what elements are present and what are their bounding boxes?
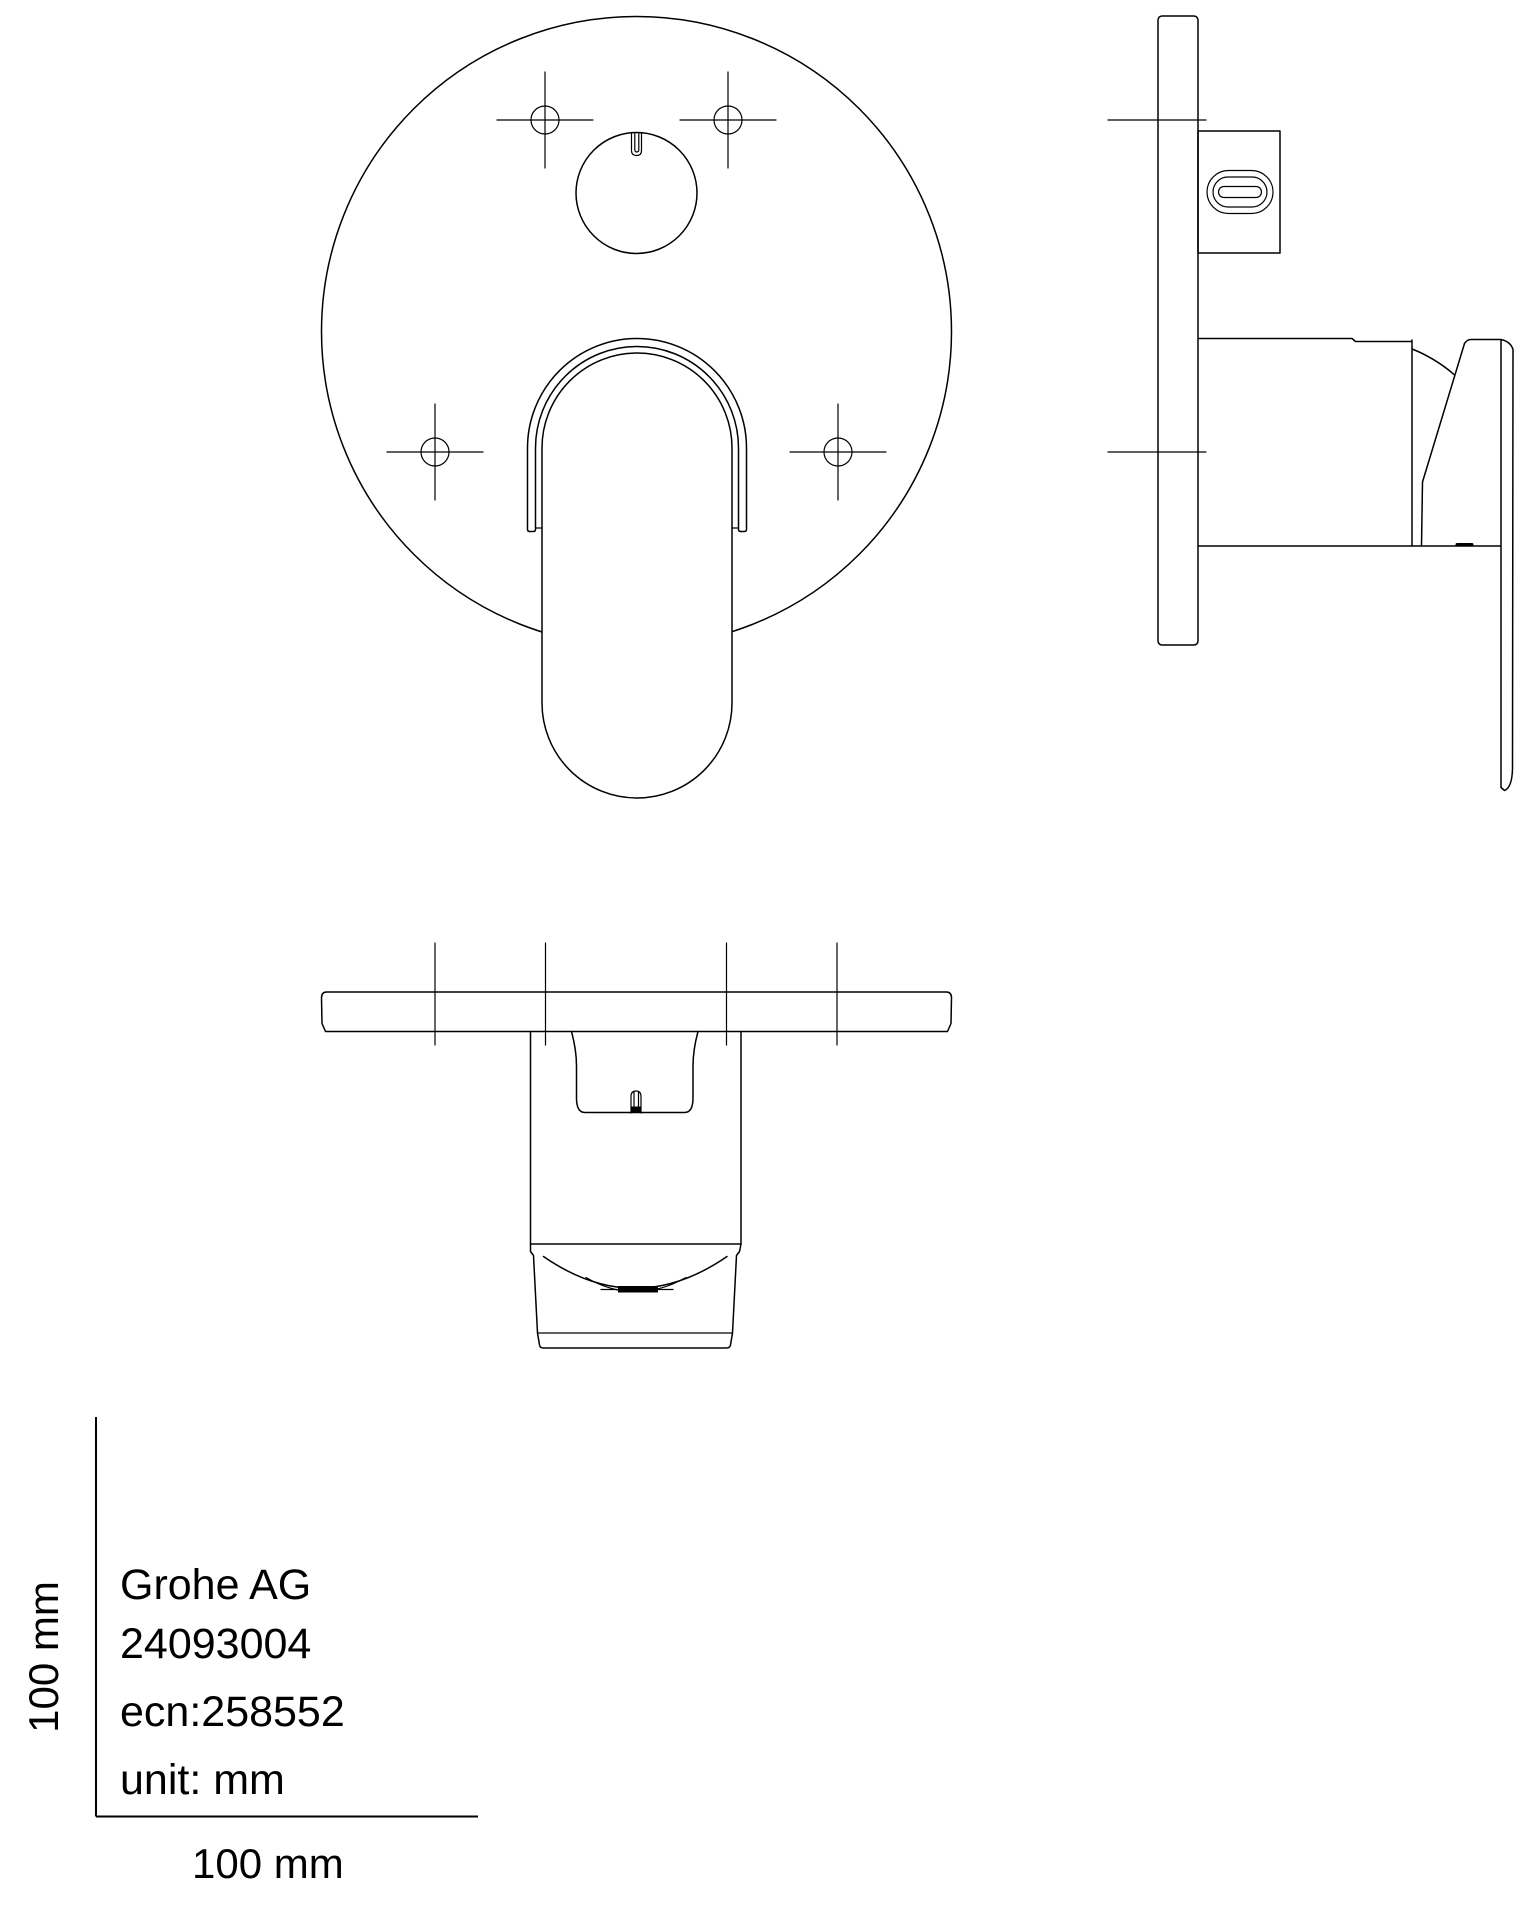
side-view [1108, 16, 1513, 791]
handle-hub-top-edge [1465, 340, 1502, 344]
grip-underside-arc-outer [544, 1257, 728, 1289]
unit-label: unit: mm [120, 1756, 285, 1804]
hub-neck-curve [1412, 349, 1454, 375]
manufacturer-label: Grohe AG [120, 1561, 311, 1609]
title-block: Grohe AG 24093004 ecn:258552 unit: mm [120, 1561, 345, 1804]
wall-plate-edge [1158, 16, 1198, 645]
diverter-pin-bottom-inner [634, 1092, 639, 1106]
lever-handle-grip [542, 353, 732, 798]
lever-blade [1501, 340, 1513, 791]
bottom-view [322, 943, 952, 1348]
screw-hole-crosshair-top-right [680, 72, 776, 168]
front-view [322, 17, 952, 799]
screw-hole-crosshair-bottom-right [790, 404, 886, 500]
valve-body-outline [1198, 339, 1501, 547]
technical-drawing: 100 mm 100 mm Grohe AG 24093004 ecn:2585… [0, 0, 1528, 1920]
handle-hub-leading-edge [1422, 344, 1465, 547]
screw-hole-crosshair-bottom-left [387, 404, 483, 500]
diverter-knob-cup [572, 1032, 699, 1113]
product-number-label: 24093004 [120, 1620, 311, 1668]
diverter-knob-circle [576, 133, 697, 254]
diverter-slot-inner [1219, 187, 1262, 198]
diverter-slot-middle [1213, 177, 1267, 207]
diverter-housing [1198, 131, 1280, 253]
pivot-slot-fill [618, 1286, 658, 1293]
screw-hole-crosshair-top-left [497, 72, 593, 168]
diverter-indicator-pin-inner [635, 133, 639, 152]
ecn-label: ecn:258552 [120, 1688, 345, 1736]
plate-edge-bar [322, 992, 952, 1032]
handle-grip-outline [531, 1032, 742, 1245]
drawing-page: 100 mm 100 mm Grohe AG 24093004 ecn:2585… [0, 0, 1528, 1920]
scale-y-label: 100 mm [20, 1581, 67, 1733]
scale-x-label: 100 mm [192, 1840, 344, 1887]
diverter-pin-fill [631, 1107, 641, 1114]
